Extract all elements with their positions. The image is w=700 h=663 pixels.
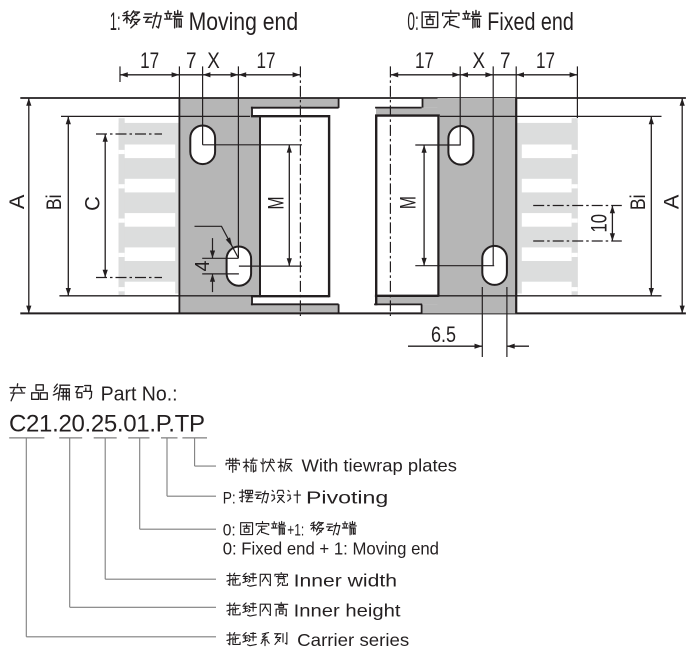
svg-text:17: 17 bbox=[536, 48, 555, 73]
svg-text:17: 17 bbox=[140, 48, 159, 73]
svg-text:A: A bbox=[660, 194, 684, 209]
svg-text:7: 7 bbox=[500, 48, 511, 73]
svg-text:With tiewrap plates: With tiewrap plates bbox=[302, 455, 458, 475]
svg-text:Fixed end: Fixed end bbox=[487, 8, 574, 36]
svg-text:0: Fixed end + 1: Moving end: 0: Fixed end + 1: Moving end bbox=[223, 539, 439, 559]
svg-text:A: A bbox=[5, 194, 29, 209]
svg-text:Part No.:: Part No.: bbox=[101, 384, 178, 406]
svg-text:Carrier series: Carrier series bbox=[297, 630, 409, 650]
svg-text:X: X bbox=[473, 48, 486, 73]
svg-text:Moving end: Moving end bbox=[189, 8, 299, 36]
svg-text:Bi: Bi bbox=[626, 195, 650, 211]
svg-text:Pivoting: Pivoting bbox=[306, 487, 388, 507]
svg-text:17: 17 bbox=[257, 48, 276, 73]
svg-text:10: 10 bbox=[587, 214, 612, 233]
svg-text:Inner width: Inner width bbox=[294, 571, 397, 591]
svg-text:Bi: Bi bbox=[42, 195, 66, 211]
svg-text:P:: P: bbox=[223, 489, 236, 507]
svg-text:C: C bbox=[81, 196, 105, 211]
svg-text:6.5: 6.5 bbox=[431, 322, 456, 347]
svg-text:M: M bbox=[263, 197, 288, 210]
svg-text:M: M bbox=[396, 196, 421, 209]
svg-text:4: 4 bbox=[191, 261, 214, 272]
svg-text:7: 7 bbox=[186, 48, 197, 73]
svg-text:0:: 0: bbox=[407, 8, 418, 36]
svg-text:X: X bbox=[207, 48, 220, 73]
svg-text:17: 17 bbox=[415, 48, 434, 73]
svg-text:+1:: +1: bbox=[287, 521, 304, 539]
svg-text:Inner height: Inner height bbox=[294, 600, 401, 620]
svg-text:1:: 1: bbox=[110, 8, 121, 36]
svg-text:0:: 0: bbox=[223, 521, 236, 539]
svg-text:C21.20.25.01.P.TP: C21.20.25.01.P.TP bbox=[9, 410, 205, 437]
